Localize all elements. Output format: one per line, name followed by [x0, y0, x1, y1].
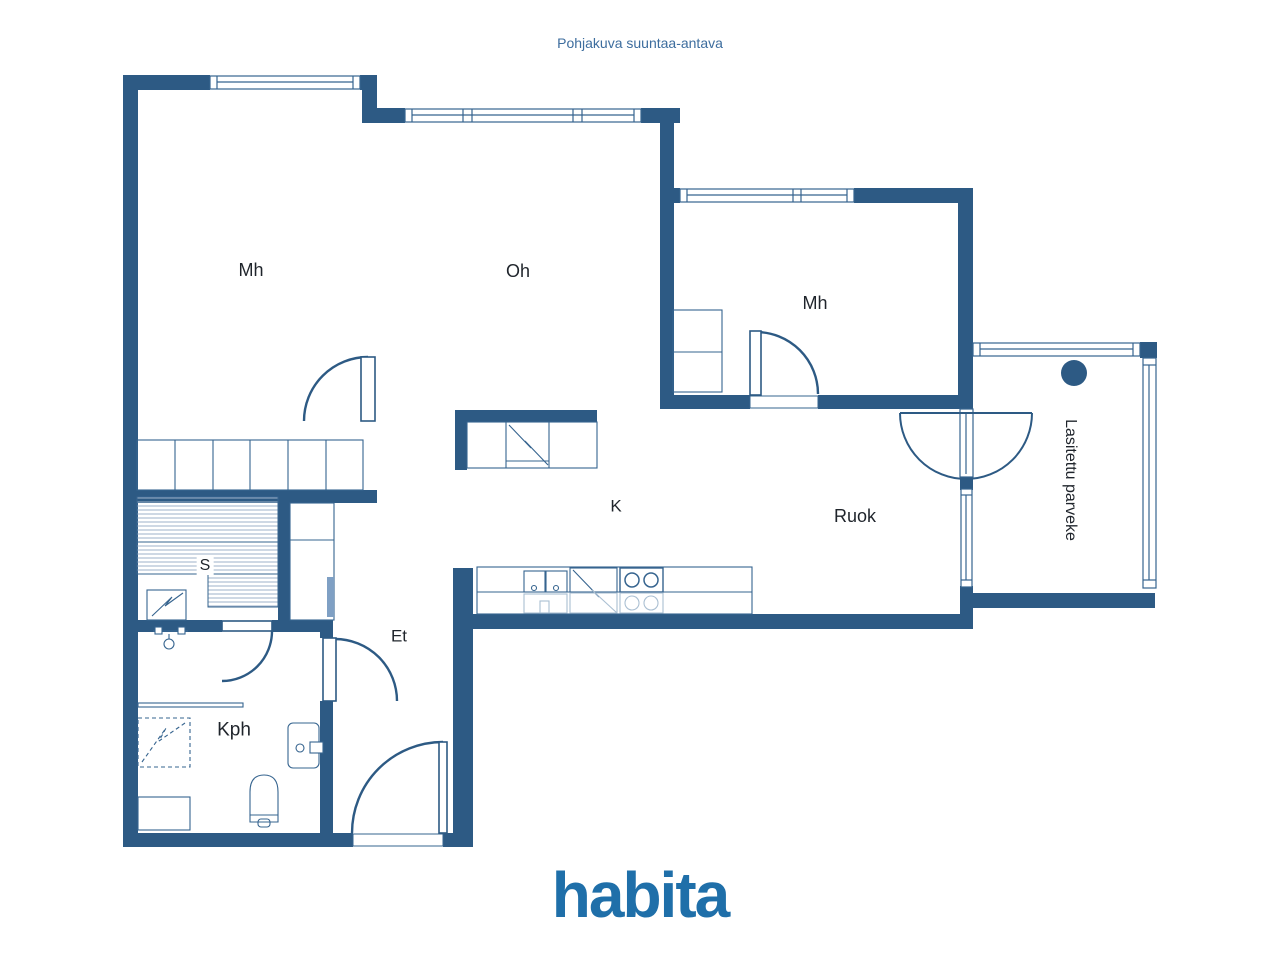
- wall-sauna-right: [278, 490, 290, 632]
- habita-logo: habita: [552, 858, 728, 932]
- door-sauna: [222, 621, 272, 681]
- wall-kph-et-a: [320, 620, 333, 638]
- balcony-drain-dot: [1061, 360, 1087, 386]
- plan-disclaimer-title: Pohjakuva suuntaa-antava: [557, 36, 723, 50]
- balcony-door-panel: [960, 409, 973, 477]
- walls: [123, 75, 1157, 847]
- room-label-mh-left: Mh: [238, 261, 263, 279]
- wall-mh-right-bottom-a: [660, 395, 750, 409]
- room-label-s: S: [197, 557, 214, 575]
- floor-plan-drawing: [0, 0, 1280, 960]
- kitchen-sink: [524, 571, 567, 613]
- shower-area-dashed: [138, 718, 190, 767]
- sauna-stove: [147, 590, 186, 620]
- wall-kitchen-bottom: [473, 614, 973, 629]
- wall-et-right: [453, 568, 473, 847]
- island-wall-top: [455, 410, 597, 422]
- wall-left-outer: [123, 75, 138, 845]
- window-mh-right: [680, 189, 854, 202]
- shower-fixture: [153, 627, 188, 649]
- balcony-glass-top: [973, 343, 1140, 356]
- room-label-k: K: [610, 498, 621, 515]
- wall-kph-et-b: [320, 701, 333, 845]
- floor-plan-page: Pohjakuva suuntaa-antava Mh Oh Mh K Ruok…: [0, 0, 1280, 960]
- door-kph-et: [323, 638, 397, 701]
- balcony-corner-post: [1140, 342, 1157, 358]
- wall-balcony-lower: [960, 586, 973, 629]
- wall-top-mh-right-a: [660, 188, 680, 203]
- door-mh-right: [750, 331, 818, 408]
- room-label-oh: Oh: [506, 262, 530, 280]
- window-mh-left: [210, 76, 360, 89]
- windows: [210, 76, 1156, 588]
- room-label-kph: Kph: [217, 721, 251, 740]
- room-label-et: Et: [391, 628, 407, 645]
- wall-right-outer: [958, 188, 973, 398]
- kitchen-counter: [477, 567, 752, 614]
- room-label-mh-right: Mh: [802, 294, 827, 312]
- balcony-glass-right: [1143, 358, 1156, 588]
- wardrobe-mh-left: [137, 440, 363, 490]
- toilet: [250, 775, 278, 827]
- wall-oh-mh-divider: [660, 108, 674, 398]
- wall-top-oh-a: [377, 108, 405, 123]
- washbasin: [288, 723, 323, 768]
- closet-hall: [290, 503, 334, 620]
- room-label-ruok: Ruok: [834, 507, 876, 525]
- shower-screen: [138, 703, 243, 707]
- kitchen-island: [467, 422, 597, 468]
- window-oh: [405, 109, 641, 122]
- wardrobe-mh-right: [673, 310, 722, 392]
- stove: [620, 568, 663, 613]
- wall-top-mh-left-a: [123, 75, 210, 90]
- bathroom-cabinet: [138, 797, 190, 830]
- wall-bottom-a: [123, 833, 353, 847]
- island-wall-left: [455, 410, 467, 470]
- wall-top-mh-right-b: [854, 188, 973, 203]
- wall-step: [362, 75, 377, 123]
- room-label-parveke: Lasitettu parveke: [1062, 419, 1078, 541]
- door-mh-left: [304, 357, 375, 421]
- window-ruok-balcony: [961, 489, 972, 587]
- door-entrance: [352, 742, 447, 846]
- wall-mh-right-bottom-b: [818, 395, 973, 409]
- fridge-symbol: [570, 568, 617, 613]
- wall-balcony-bottom: [973, 593, 1155, 608]
